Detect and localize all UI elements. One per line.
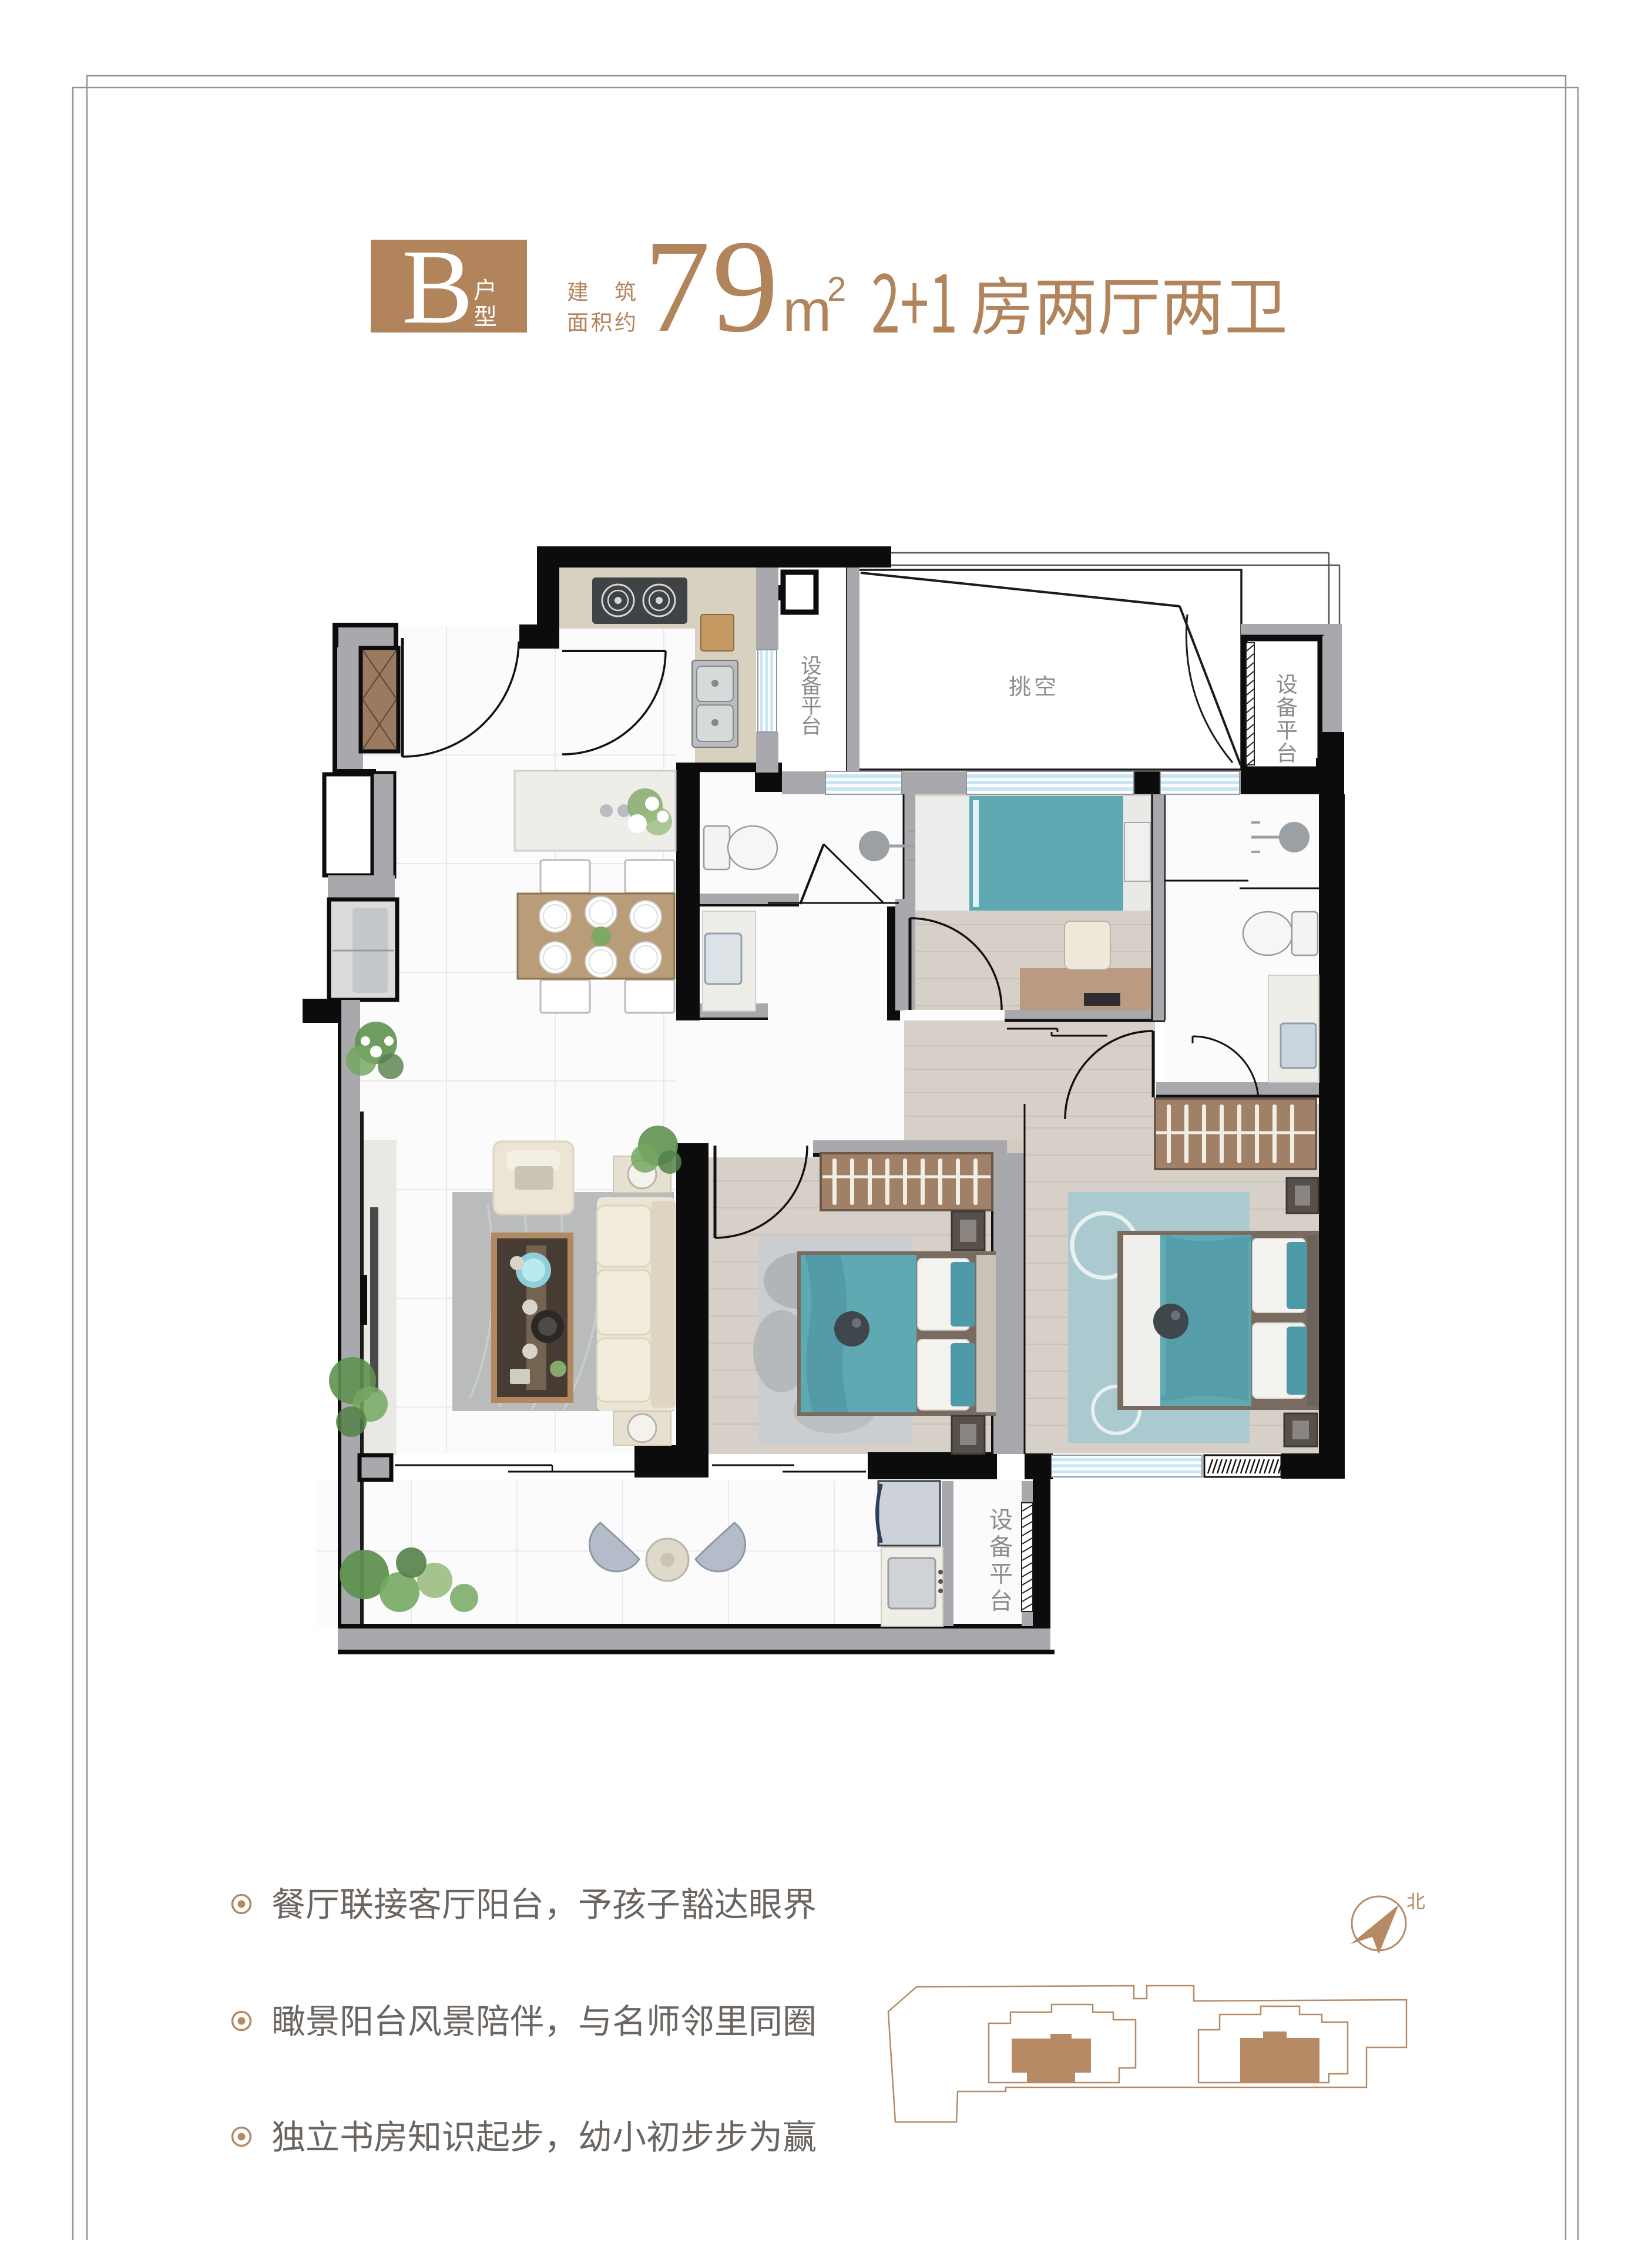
- svg-text:2: 2: [827, 270, 846, 308]
- svg-text:79: 79: [644, 213, 780, 360]
- svg-text:B: B: [402, 228, 473, 346]
- svg-text:m: m: [783, 278, 831, 344]
